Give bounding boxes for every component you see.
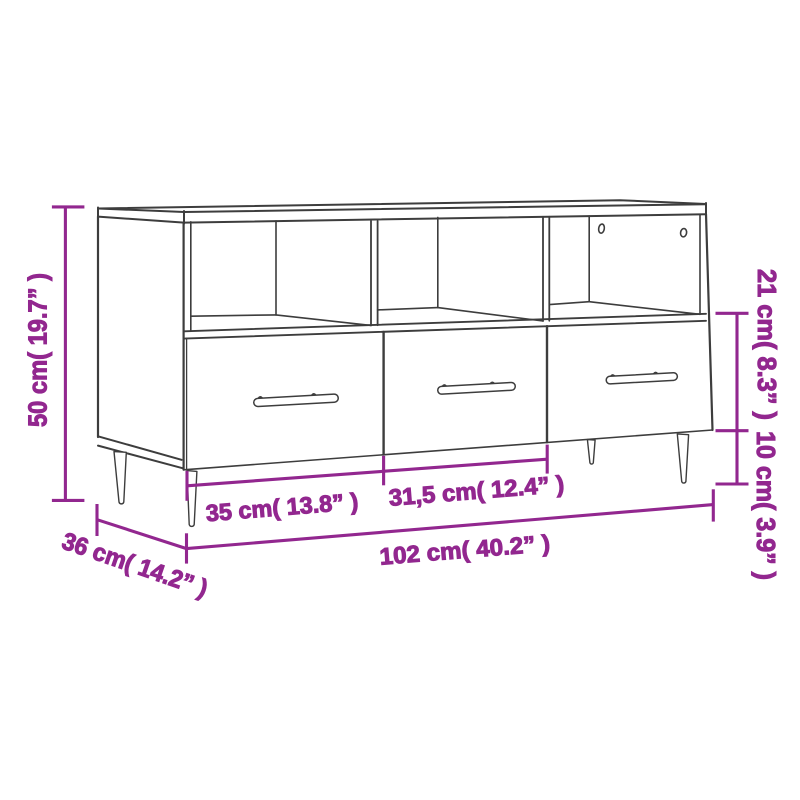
svg-text:21 cm( 8.3” ): 21 cm( 8.3” ) bbox=[752, 269, 780, 420]
svg-text:10 cm( 3.9” ): 10 cm( 3.9” ) bbox=[751, 431, 780, 580]
svg-text:50 cm( 19.7” ): 50 cm( 19.7” ) bbox=[23, 273, 52, 427]
